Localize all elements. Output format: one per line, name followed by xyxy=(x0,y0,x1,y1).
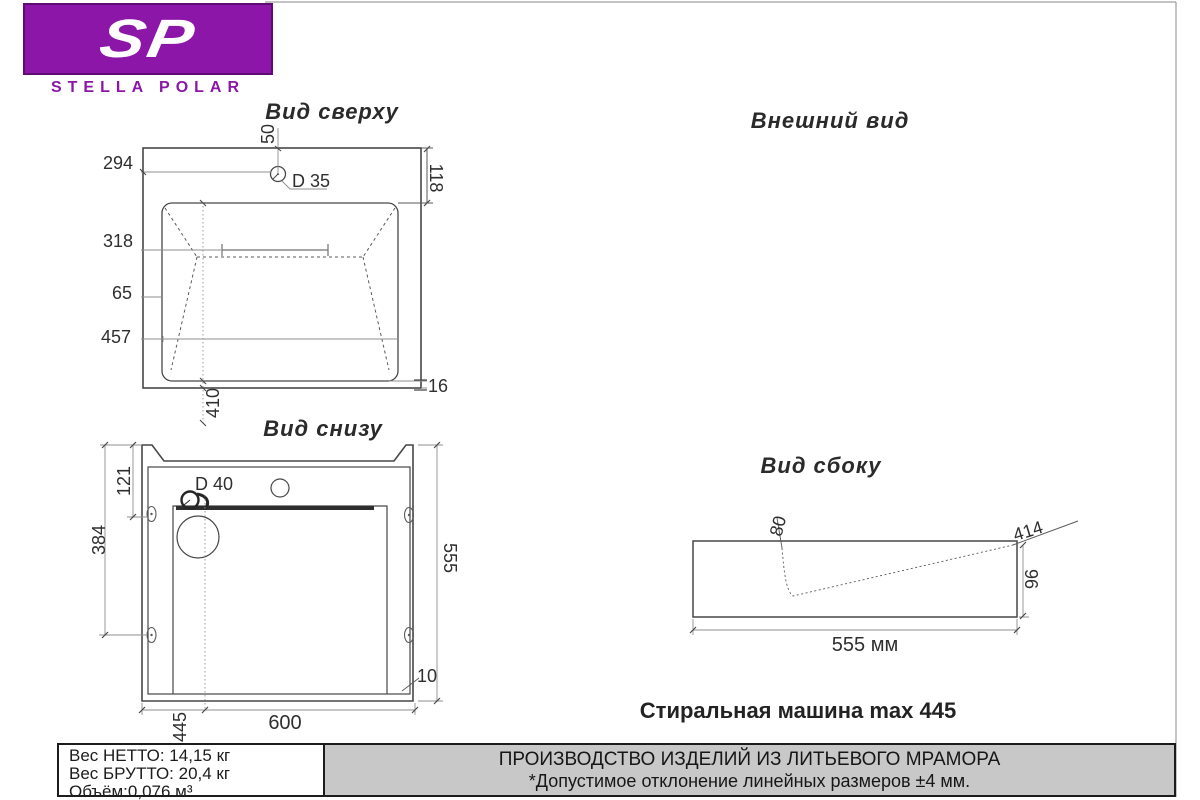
bottom-view-title: Вид снизу xyxy=(263,416,383,442)
top-view-title: Вид сверху xyxy=(265,99,399,125)
hole-diameter-label: D 35 xyxy=(292,172,330,190)
footer-production-box: ПРОИЗВОДСТВО ИЗДЕЛИЙ ИЗ ЛИТЬЕВОГО МРАМОР… xyxy=(325,743,1176,797)
drain-diameter-label: D 40 xyxy=(195,475,233,493)
dim-label-457: 457 xyxy=(101,328,131,346)
brand-logo: SP xyxy=(23,3,273,75)
technical-linework xyxy=(0,0,1200,800)
production-line: ПРОИЗВОДСТВО ИЗДЕЛИЙ ИЗ ЛИТЬЕВОГО МРАМОР… xyxy=(499,749,1001,771)
dim-label-65: 65 xyxy=(112,284,132,302)
dim-label-555mm: 555 мм xyxy=(832,635,898,655)
tolerance-line: *Допустимое отклонение линейных размеров… xyxy=(529,771,970,791)
dim-label-294: 294 xyxy=(103,154,133,172)
mounting-bosses xyxy=(147,507,414,643)
page-border xyxy=(265,2,1176,797)
siphon-circle xyxy=(177,516,219,558)
dim-label-384: 384 xyxy=(90,525,108,555)
side-view-title: Вид сбоку xyxy=(761,453,882,479)
overflow-hole xyxy=(271,479,289,497)
dim-label-118: 118 xyxy=(427,164,445,193)
dim-label-410: 410 xyxy=(204,388,222,418)
dim-label-121: 121 xyxy=(115,466,133,496)
dim-label-600: 600 xyxy=(268,713,301,733)
weight-net: Вес НЕТТО: 14,15 кг xyxy=(69,747,323,765)
dim-label-10: 10 xyxy=(417,667,437,685)
bottom-view-linework xyxy=(99,442,443,715)
volume: Объём:0,076 м³ xyxy=(69,783,323,800)
dim-label-445: 445 xyxy=(171,712,189,742)
dim-label-555: 555 xyxy=(441,543,459,573)
basin-rim xyxy=(162,203,398,381)
footer-weights-box: Вес НЕТТО: 14,15 кг Вес БРУТТО: 20,4 кг … xyxy=(57,743,325,797)
product-caption: Стиральная машина max 445 xyxy=(640,698,956,724)
dim-label-80: 80 xyxy=(767,514,790,538)
dim-label-318: 318 xyxy=(103,232,133,250)
dim-label-96: 96 xyxy=(1022,569,1040,589)
dim-label-50: 50 xyxy=(259,124,277,144)
weight-gross: Вес БРУТТО: 20,4 кг xyxy=(69,765,323,783)
dim-label-16: 16 xyxy=(428,377,448,395)
spec-sheet-page: SP STELLA POLAR Вид сверху Вид снизу Вне… xyxy=(0,0,1200,800)
brand-monogram: SP xyxy=(96,12,201,66)
brand-name: STELLA POLAR xyxy=(23,79,273,97)
external-view-title: Внешний вид xyxy=(751,108,910,134)
top-view-linework xyxy=(140,128,433,426)
